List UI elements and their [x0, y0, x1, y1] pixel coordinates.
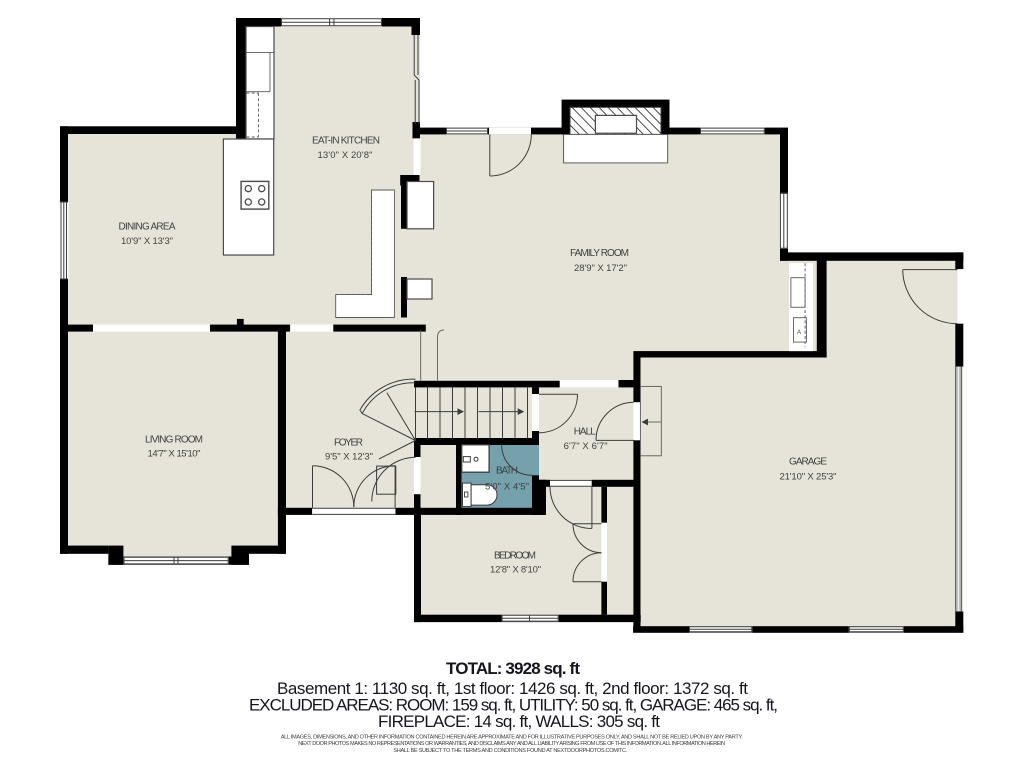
- svg-text:NEXT DOOR PHOTOS MAKES NO REPR: NEXT DOOR PHOTOS MAKES NO REPRESENTATION…: [298, 741, 725, 747]
- svg-text:9'5" X 12'3": 9'5" X 12'3": [325, 452, 373, 463]
- svg-text:10'9" X 13'3": 10'9" X 13'3": [121, 236, 173, 247]
- svg-text:BATH: BATH: [496, 466, 518, 477]
- svg-text:LIVING ROOM: LIVING ROOM: [145, 435, 203, 446]
- svg-text:ALL IMAGES, DIMENSIONS, AND OT: ALL IMAGES, DIMENSIONS, AND OTHER INFORM…: [281, 734, 743, 740]
- svg-text:FOYER: FOYER: [334, 438, 363, 449]
- svg-text:HALL: HALL: [574, 426, 596, 437]
- svg-text:14'7" X 15'10": 14'7" X 15'10": [148, 449, 201, 460]
- svg-text:5'0" X 4'5": 5'0" X 4'5": [485, 482, 529, 493]
- svg-text:FIREPLACE: 14 sq. ft, WALLS: 3: FIREPLACE: 14 sq. ft, WALLS: 305 sq. ft: [378, 712, 660, 731]
- svg-text:6'7" X 6'7": 6'7" X 6'7": [564, 441, 608, 452]
- svg-text:21'10" X 25'3": 21'10" X 25'3": [780, 472, 837, 483]
- svg-text:FAMILY ROOM: FAMILY ROOM: [570, 248, 629, 259]
- svg-text:13'0" X 20'8": 13'0" X 20'8": [318, 150, 373, 161]
- svg-text:SHALL BE SUBJECT TO THE TERMS: SHALL BE SUBJECT TO THE TERMS AND CONDIT…: [393, 748, 627, 754]
- svg-text:EAT-IN KITCHEN: EAT-IN KITCHEN: [312, 136, 380, 147]
- svg-text:BEDROOM: BEDROOM: [494, 551, 536, 562]
- svg-text:GARAGE: GARAGE: [789, 457, 827, 468]
- svg-text:A: A: [797, 330, 801, 336]
- svg-text:DINING AREA: DINING AREA: [119, 222, 176, 233]
- svg-text:TOTAL: 3928 sq. ft: TOTAL: 3928 sq. ft: [446, 659, 580, 678]
- svg-text:12'8" X 8'10": 12'8" X 8'10": [490, 565, 541, 576]
- svg-text:28'9" X 17'2": 28'9" X 17'2": [574, 263, 627, 274]
